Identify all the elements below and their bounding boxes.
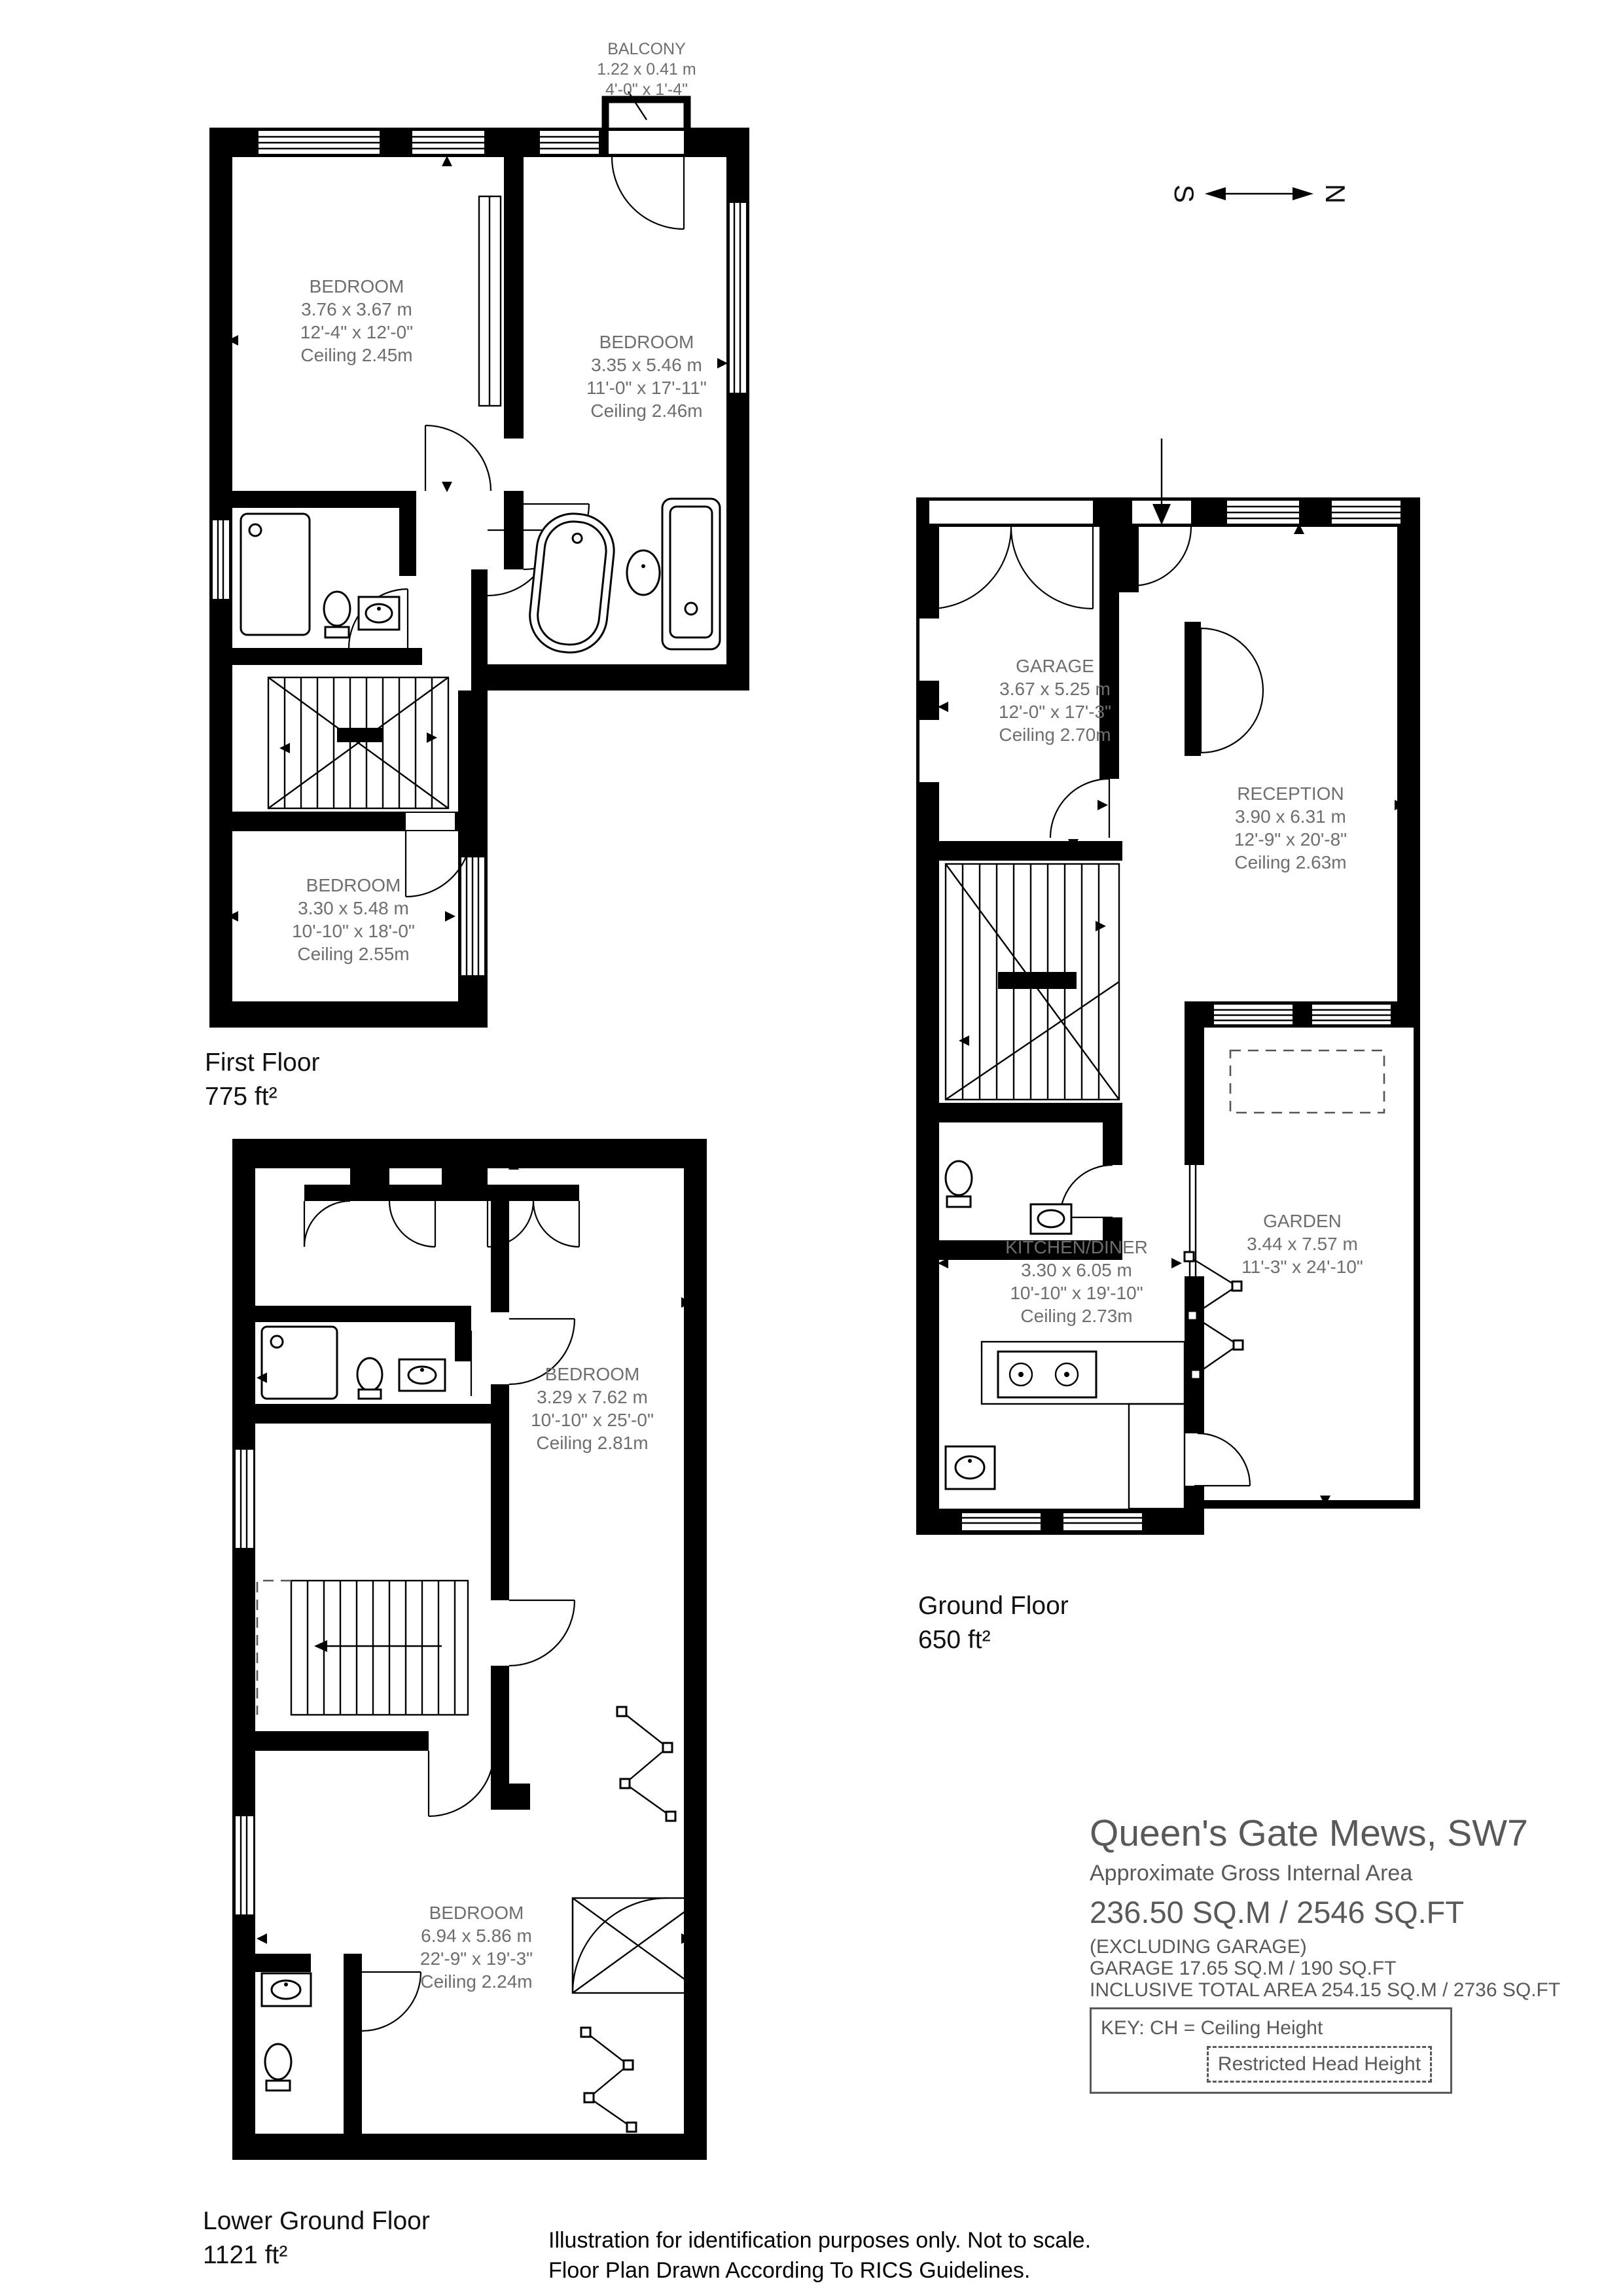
compass-south-label: S <box>1168 185 1200 203</box>
room-metric: 3.90 x 6.31 m <box>1234 805 1347 828</box>
wall-markers <box>257 1159 692 1944</box>
disclaimer-line-2: Floor Plan Drawn According To RICS Guide… <box>548 2255 1091 2286</box>
room-ceiling: Ceiling 2.70m <box>999 723 1111 746</box>
entrance-doors <box>304 1201 579 1247</box>
basin <box>359 597 399 630</box>
caption-ground-floor: Ground Floor 650 ft² <box>918 1589 1069 1657</box>
bathtub-freestanding <box>526 510 618 656</box>
room-name: KITCHEN/DINER <box>1005 1236 1148 1259</box>
room-ceiling: Ceiling 2.55m <box>292 942 415 965</box>
room-label-ff-bedroom-middle: BEDROOM 3.35 x 5.46 m 11'-0" x 17'-11" C… <box>586 331 707 422</box>
room-ceiling: Ceiling 2.45m <box>300 344 413 367</box>
room-name: BEDROOM <box>292 874 415 897</box>
room-metric: 3.44 x 7.57 m <box>1241 1232 1363 1255</box>
room-imperial: 12'-4" x 12'-0" <box>300 321 413 344</box>
disclaimer-line-1: Illustration for identification purposes… <box>548 2225 1091 2255</box>
room-name: BALCONY <box>597 39 696 60</box>
room-metric: 3.29 x 7.62 m <box>531 1386 654 1408</box>
caption-lower-ground-floor: Lower Ground Floor 1121 ft² <box>203 2204 430 2272</box>
garage-area: GARAGE 17.65 SQ.M / 190 SQ.FT <box>1090 1958 1613 1979</box>
room-name: BEDROOM <box>300 275 413 298</box>
entrance-door <box>1132 439 1191 586</box>
basin <box>399 1359 445 1391</box>
page-title: Queen's Gate Mews, SW7 <box>1090 1813 1613 1854</box>
room-ceiling: Ceiling 2.46m <box>586 399 707 422</box>
room-ceiling: Ceiling 2.63m <box>1234 851 1347 874</box>
room-metric: 3.76 x 3.67 m <box>300 298 413 321</box>
title-subtitle: Approximate Gross Internal Area <box>1090 1860 1613 1886</box>
room-name: GARDEN <box>1241 1210 1363 1232</box>
first-floor-plan-svg <box>196 33 759 1060</box>
room-metric: 3.67 x 5.25 m <box>999 677 1111 700</box>
total-area: 236.50 SQ.M / 2546 SQ.FT <box>1090 1895 1613 1929</box>
room-label-garage: GARAGE 3.67 x 5.25 m 12'-0" x 17'-3" Cei… <box>999 655 1111 746</box>
room-metric: 3.30 x 5.48 m <box>292 897 415 920</box>
toilet <box>946 1161 972 1207</box>
ground-floor-plan <box>906 412 1427 1584</box>
inclusive-total-area: INCLUSIVE TOTAL AREA 254.15 SQ.M / 2736 … <box>1090 1979 1613 2001</box>
room-name: BEDROOM <box>531 1363 654 1386</box>
room-imperial: 12'-9" x 20'-8" <box>1234 828 1347 851</box>
wardrobe-rail-upper <box>617 1707 675 1821</box>
room-imperial: 11'-3" x 24'-10" <box>1241 1255 1363 1278</box>
key-label: KEY: CH = Ceiling Height <box>1101 2017 1441 2039</box>
room-label-ff-bedroom-rear: BEDROOM 3.30 x 5.48 m 10'-10" x 18'-0" C… <box>292 874 415 965</box>
room-metric: 6.94 x 5.86 m <box>420 1924 533 1947</box>
room-name: BEDROOM <box>586 331 707 353</box>
room-ceiling: Ceiling 2.24m <box>420 1970 533 1993</box>
toilet <box>324 592 350 637</box>
stairs <box>946 864 1119 1100</box>
room-label-ff-bedroom-front: BEDROOM 3.76 x 3.67 m 12'-4" x 12'-0" Ce… <box>300 275 413 367</box>
ensuite-fixtures <box>262 1973 311 2090</box>
title-block: Queen's Gate Mews, SW7 Approximate Gross… <box>1090 1813 1613 2094</box>
room-label-lg-bedroom-main: BEDROOM 6.94 x 5.86 m 22'-9" x 19'-3" Ce… <box>420 1901 533 1993</box>
garage-doors <box>929 501 1093 609</box>
floor-area: 775 ft² <box>205 1080 320 1114</box>
floor-name: First Floor <box>205 1046 320 1080</box>
compass-arrow <box>1204 184 1315 204</box>
room-imperial: 10'-10" x 18'-0" <box>292 920 415 942</box>
room-imperial: 10'-10" x 25'-0" <box>531 1408 654 1431</box>
room-imperial: 4'-0" x 1'-4" <box>597 80 696 100</box>
room-label-balcony: BALCONY 1.22 x 0.41 m 4'-0" x 1'-4" <box>597 39 696 100</box>
excluding-garage-note: (EXCLUDING GARAGE) <box>1090 1936 1613 1958</box>
bathtub-builtin <box>662 499 720 649</box>
room-imperial: 22'-9" x 19'-3" <box>420 1947 533 1970</box>
room-ceiling: Ceiling 2.73m <box>1005 1304 1148 1327</box>
windows <box>919 501 1400 1530</box>
room-imperial: 12'-0" x 17'-3" <box>999 700 1111 723</box>
caption-first-floor: First Floor 775 ft² <box>205 1046 320 1114</box>
room-name: GARAGE <box>999 655 1111 677</box>
room-metric: 3.35 x 5.46 m <box>586 353 707 376</box>
restricted-head-height-key: Restricted Head Height <box>1207 2046 1432 2083</box>
kitchen-counter <box>946 1342 1185 1509</box>
room-imperial: 11'-0" x 17'-11" <box>586 376 707 399</box>
floor-area: 1121 ft² <box>203 2238 430 2272</box>
room-imperial: 10'-10" x 19'-10" <box>1005 1282 1148 1304</box>
toilet <box>357 1358 382 1399</box>
shower <box>241 514 310 635</box>
stairs <box>257 1581 468 1715</box>
basin <box>1031 1204 1071 1234</box>
room-label-reception: RECEPTION 3.90 x 6.31 m 12'-9" x 20'-8" … <box>1234 782 1347 874</box>
compass: S N <box>1175 178 1345 209</box>
room-metric: 1.22 x 0.41 m <box>597 60 696 80</box>
lower-ground-floor-plan-svg <box>193 1122 723 2209</box>
wardrobe <box>479 196 501 406</box>
room-name: RECEPTION <box>1234 782 1347 805</box>
room-metric: 3.30 x 6.05 m <box>1005 1259 1148 1282</box>
floor-area: 650 ft² <box>918 1623 1069 1657</box>
garden-table <box>1230 1050 1384 1113</box>
first-floor-plan <box>196 33 759 1060</box>
shower <box>262 1327 337 1399</box>
stairs <box>268 677 448 808</box>
wardrobe-rail-lower <box>581 2028 636 2132</box>
ground-floor-plan-svg <box>906 412 1427 1584</box>
floor-name: Ground Floor <box>918 1589 1069 1623</box>
disclaimer: Illustration for identification purposes… <box>548 2225 1091 2286</box>
room-label-garden: GARDEN 3.44 x 7.57 m 11'-3" x 24'-10" <box>1241 1210 1363 1278</box>
room-name: BEDROOM <box>420 1901 533 1924</box>
lower-ground-floor-plan <box>193 1122 723 2209</box>
key-box: KEY: CH = Ceiling Height Restricted Head… <box>1090 2007 1452 2094</box>
room-ceiling: Ceiling 2.81m <box>531 1431 654 1454</box>
floor-name: Lower Ground Floor <box>203 2204 430 2238</box>
room-label-lg-bedroom-upper: BEDROOM 3.29 x 7.62 m 10'-10" x 25'-0" C… <box>531 1363 654 1454</box>
room-label-kitchen-diner: KITCHEN/DINER 3.30 x 6.05 m 10'-10" x 19… <box>1005 1236 1148 1327</box>
basin-pedestal <box>627 550 660 595</box>
compass-north-label: N <box>1319 184 1351 204</box>
floorplan-page: { "page": {"background": "#ffffff"}, "co… <box>0 0 1623 2296</box>
